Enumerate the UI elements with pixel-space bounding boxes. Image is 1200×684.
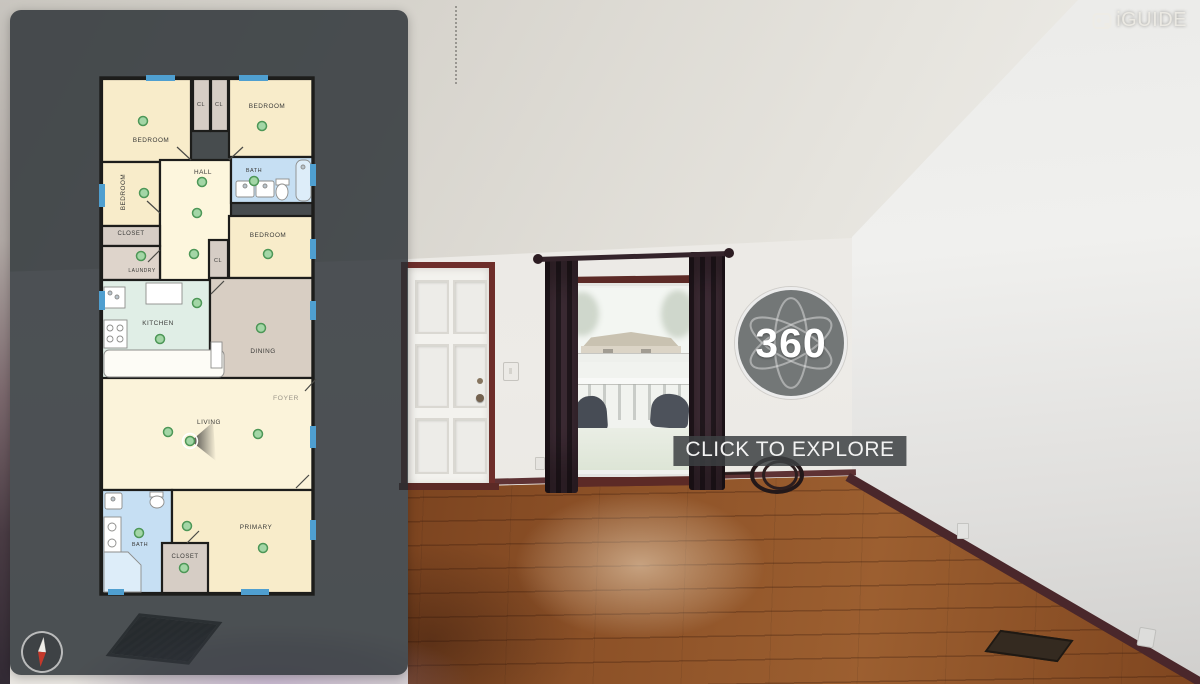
- door-knob: [476, 394, 484, 402]
- logo-text: iGUIDE: [1116, 9, 1187, 32]
- outlet: [957, 523, 969, 539]
- light-switch: [503, 362, 519, 381]
- curtain-left: [545, 257, 578, 493]
- curtain-rod-finial: [533, 254, 543, 264]
- outlet: [535, 457, 545, 470]
- iguide-logo[interactable]: iGUIDE: [1092, 9, 1187, 32]
- ceiling-light-chain: [455, 6, 457, 84]
- click-to-explore-button[interactable]: CLICK TO EXPLORE: [673, 436, 906, 466]
- left-edge-shadow: [0, 0, 10, 684]
- floorplan-panel[interactable]: [10, 10, 408, 675]
- porch-chair: [650, 392, 689, 429]
- window-glass: [573, 288, 689, 470]
- badge-360[interactable]: 360: [735, 287, 847, 399]
- door-threshold: [399, 483, 499, 490]
- outlet: [1136, 627, 1156, 649]
- curtain-rod-finial: [724, 248, 734, 258]
- iguide-camera-icon: [1092, 12, 1112, 30]
- entry-door: [401, 262, 495, 488]
- badge-label: 360: [755, 320, 826, 367]
- panorama-viewer[interactable]: 360 CLICK TO EXPLORE iGUIDE BEDROOMCLCLB…: [0, 0, 1200, 684]
- door-deadbolt: [477, 378, 483, 384]
- compass-needle-north-icon: [38, 637, 48, 653]
- window-sill: [566, 476, 702, 487]
- compass-needle-south-icon: [36, 652, 46, 668]
